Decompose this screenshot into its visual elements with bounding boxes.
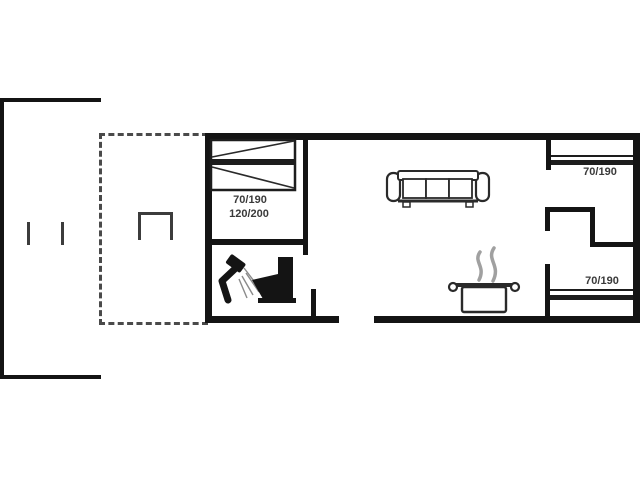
floor-plan: 70/190 120/200 70/190 70/190 <box>0 0 640 480</box>
bed-size-label-main-1: 70/190 <box>222 194 278 206</box>
bed-size-label-main-2: 120/200 <box>218 208 280 220</box>
furniture-icons-layer <box>0 0 640 480</box>
toilet-icon <box>252 257 296 303</box>
steam-icon <box>478 248 496 281</box>
bed-size-label-top-right: 70/190 <box>573 166 627 178</box>
bunk-bed-icon <box>211 140 295 190</box>
bed-size-label-bottom-right: 70/190 <box>575 275 629 287</box>
shower-icon <box>222 254 259 300</box>
sofa-icon <box>387 171 489 207</box>
cooking-pot-icon <box>449 283 519 312</box>
